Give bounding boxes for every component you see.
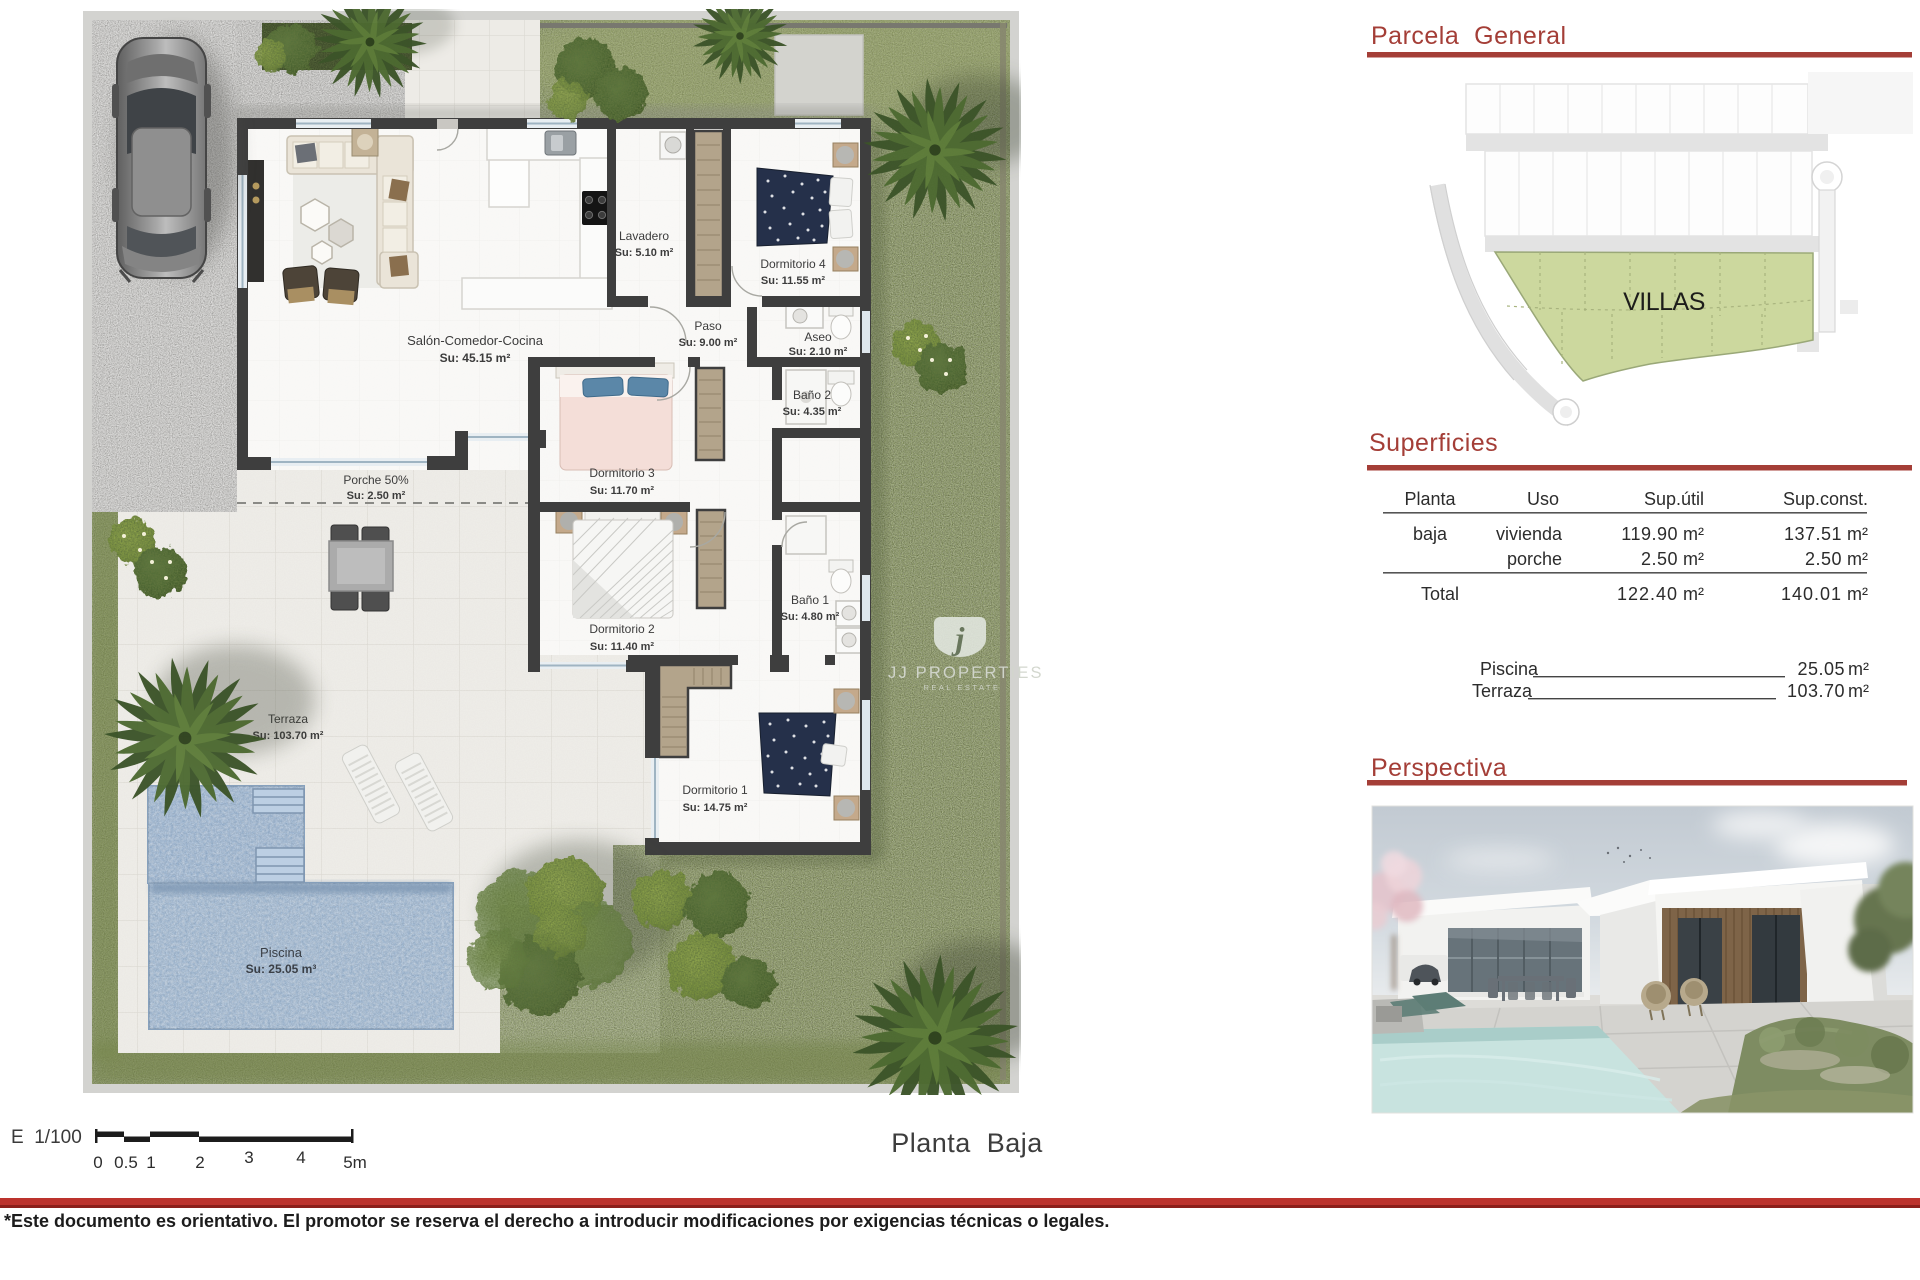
svg-text:Planta: Planta xyxy=(1404,489,1456,509)
svg-text:Su: 2.50 m²: Su: 2.50 m² xyxy=(347,490,406,502)
svg-text:E 1/100: E 1/100 xyxy=(11,1127,82,1148)
svg-text:Su: 11.40 m²: Su: 11.40 m² xyxy=(590,641,655,653)
svg-text:m²: m² xyxy=(1847,584,1868,604)
svg-text:m²: m² xyxy=(1683,549,1704,569)
svg-text:119.90: 119.90 xyxy=(1621,524,1678,544)
svg-text:Superficies: Superficies xyxy=(1369,429,1498,457)
svg-text:Su: 4.35 m²: Su: 4.35 m² xyxy=(783,406,842,418)
svg-text:Su: 4.80 m²: Su: 4.80 m² xyxy=(781,611,840,623)
svg-text:Dormitorio 1: Dormitorio 1 xyxy=(682,783,748,797)
svg-text:baja: baja xyxy=(1413,524,1448,544)
svg-text:4: 4 xyxy=(296,1148,305,1167)
svg-text:Terraza: Terraza xyxy=(1472,681,1533,701)
svg-text:Su: 45.15 m²: Su: 45.15 m² xyxy=(440,351,511,365)
svg-text:Sup.const.: Sup.const. xyxy=(1783,489,1868,509)
svg-text:Baño 2: Baño 2 xyxy=(793,388,831,402)
svg-text:2.50: 2.50 xyxy=(1641,549,1678,569)
svg-text:103.70: 103.70 xyxy=(1787,681,1845,701)
svg-text:JJ PROPERTIES: JJ PROPERTIES xyxy=(888,664,1044,682)
svg-text:Porche 50%: Porche 50% xyxy=(343,473,409,487)
svg-text:Su: 11.55 m²: Su: 11.55 m² xyxy=(761,275,826,287)
svg-text:140.01: 140.01 xyxy=(1781,584,1842,604)
svg-text:m²: m² xyxy=(1848,681,1869,701)
svg-text:Salón-Comedor-Cocina: Salón-Comedor-Cocina xyxy=(407,333,544,348)
svg-text:Lavadero: Lavadero xyxy=(619,229,669,243)
svg-text:m²: m² xyxy=(1847,549,1868,569)
svg-text:Su: 2.10 m²: Su: 2.10 m² xyxy=(789,346,848,358)
svg-text:Su: 25.05 m³: Su: 25.05 m³ xyxy=(246,962,317,976)
svg-text:122.40: 122.40 xyxy=(1617,584,1678,604)
svg-text:Dormitorio 4: Dormitorio 4 xyxy=(760,257,826,271)
svg-text:vivienda: vivienda xyxy=(1496,524,1563,544)
svg-text:2: 2 xyxy=(195,1153,204,1172)
svg-text:Su: 11.70 m²: Su: 11.70 m² xyxy=(590,485,655,497)
svg-text:0: 0 xyxy=(93,1153,102,1172)
svg-text:25.05: 25.05 xyxy=(1797,659,1845,679)
svg-text:m²: m² xyxy=(1848,659,1869,679)
svg-text:0.5: 0.5 xyxy=(114,1153,138,1172)
svg-text:Piscina: Piscina xyxy=(260,945,303,960)
svg-text:Baño 1: Baño 1 xyxy=(791,593,829,607)
svg-text:2.50: 2.50 xyxy=(1805,549,1842,569)
svg-text:137.51: 137.51 xyxy=(1784,524,1842,544)
svg-text:VILLAS: VILLAS xyxy=(1623,288,1705,316)
svg-text:porche: porche xyxy=(1507,549,1562,569)
svg-text:Piscina: Piscina xyxy=(1480,659,1539,679)
svg-text:Su: 9.00 m²: Su: 9.00 m² xyxy=(679,337,738,349)
svg-text:3: 3 xyxy=(244,1148,253,1167)
svg-text:Su: 5.10 m²: Su: 5.10 m² xyxy=(615,247,674,259)
svg-text:Parcela General: Parcela General xyxy=(1371,22,1567,50)
svg-text:REAL ESTATE: REAL ESTATE xyxy=(924,683,1001,692)
svg-text:Sup.útil: Sup.útil xyxy=(1644,489,1704,509)
svg-text:Dormitorio 3: Dormitorio 3 xyxy=(589,466,655,480)
svg-text:Uso: Uso xyxy=(1527,489,1559,509)
svg-text:Total: Total xyxy=(1421,584,1459,604)
svg-text:m²: m² xyxy=(1847,524,1868,544)
svg-text:5m: 5m xyxy=(343,1153,367,1172)
svg-text:Su: 14.75 m²: Su: 14.75 m² xyxy=(683,802,748,814)
svg-text:Dormitorio 2: Dormitorio 2 xyxy=(589,622,655,636)
svg-text:Perspectiva: Perspectiva xyxy=(1371,754,1507,782)
svg-text:1: 1 xyxy=(146,1153,155,1172)
svg-text:m²: m² xyxy=(1683,524,1704,544)
svg-text:Planta Baja: Planta Baja xyxy=(891,1128,1043,1158)
svg-text:*Este documento es orientativo: *Este documento es orientativo. El promo… xyxy=(4,1211,1109,1231)
svg-text:Aseo: Aseo xyxy=(804,330,832,344)
svg-text:Paso: Paso xyxy=(694,319,722,333)
svg-text:m²: m² xyxy=(1683,584,1704,604)
